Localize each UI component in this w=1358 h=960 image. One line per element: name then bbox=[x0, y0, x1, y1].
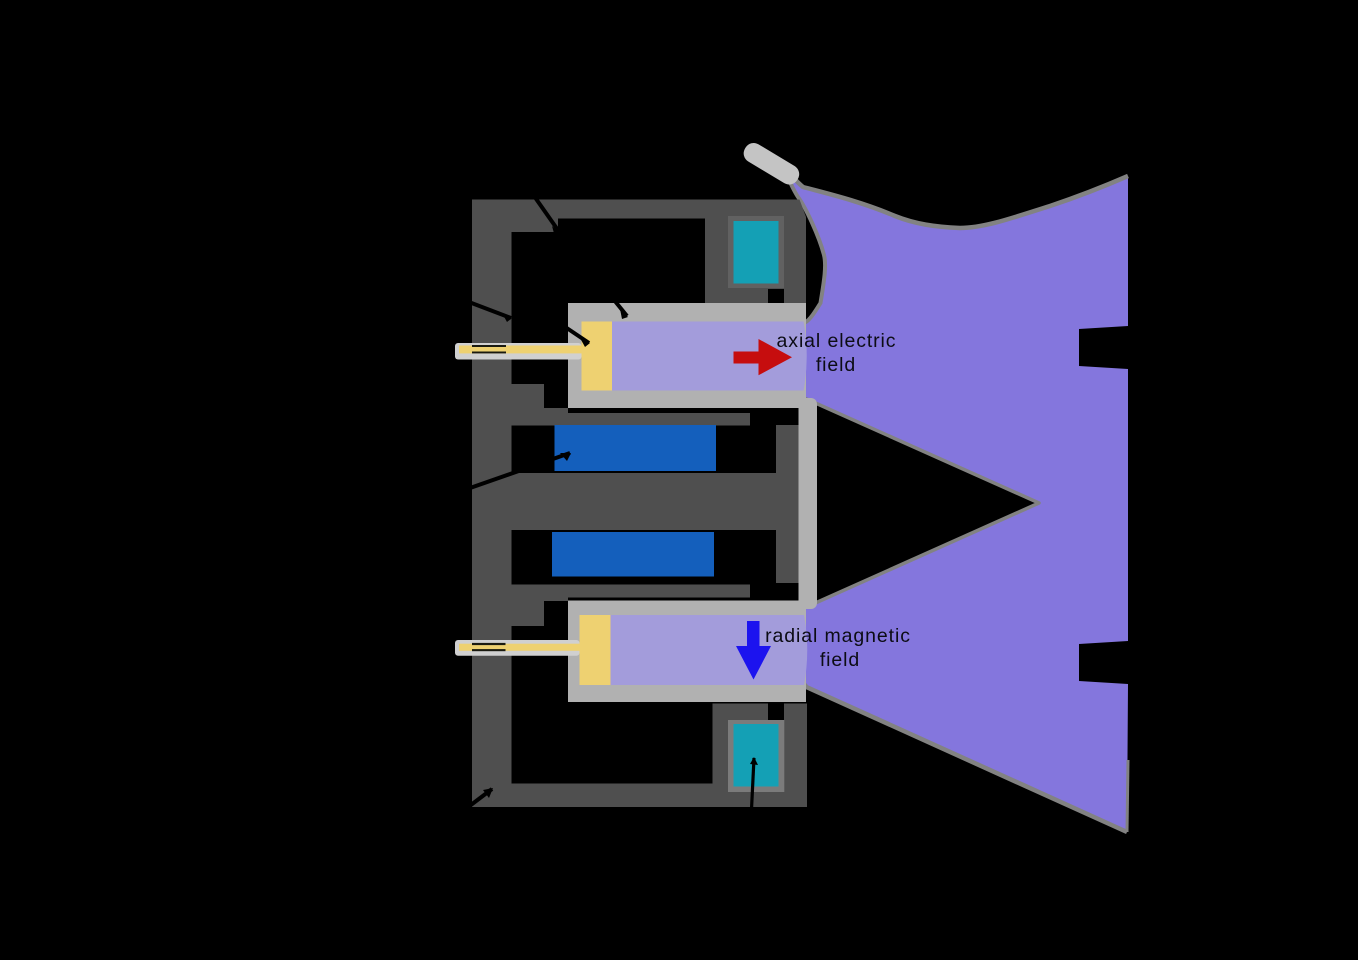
svg-text:field: field bbox=[820, 649, 860, 671]
svg-text:radial magnetic: radial magnetic bbox=[765, 625, 911, 647]
svg-text:field: field bbox=[816, 354, 856, 376]
svg-text:axial electric: axial electric bbox=[777, 330, 897, 352]
